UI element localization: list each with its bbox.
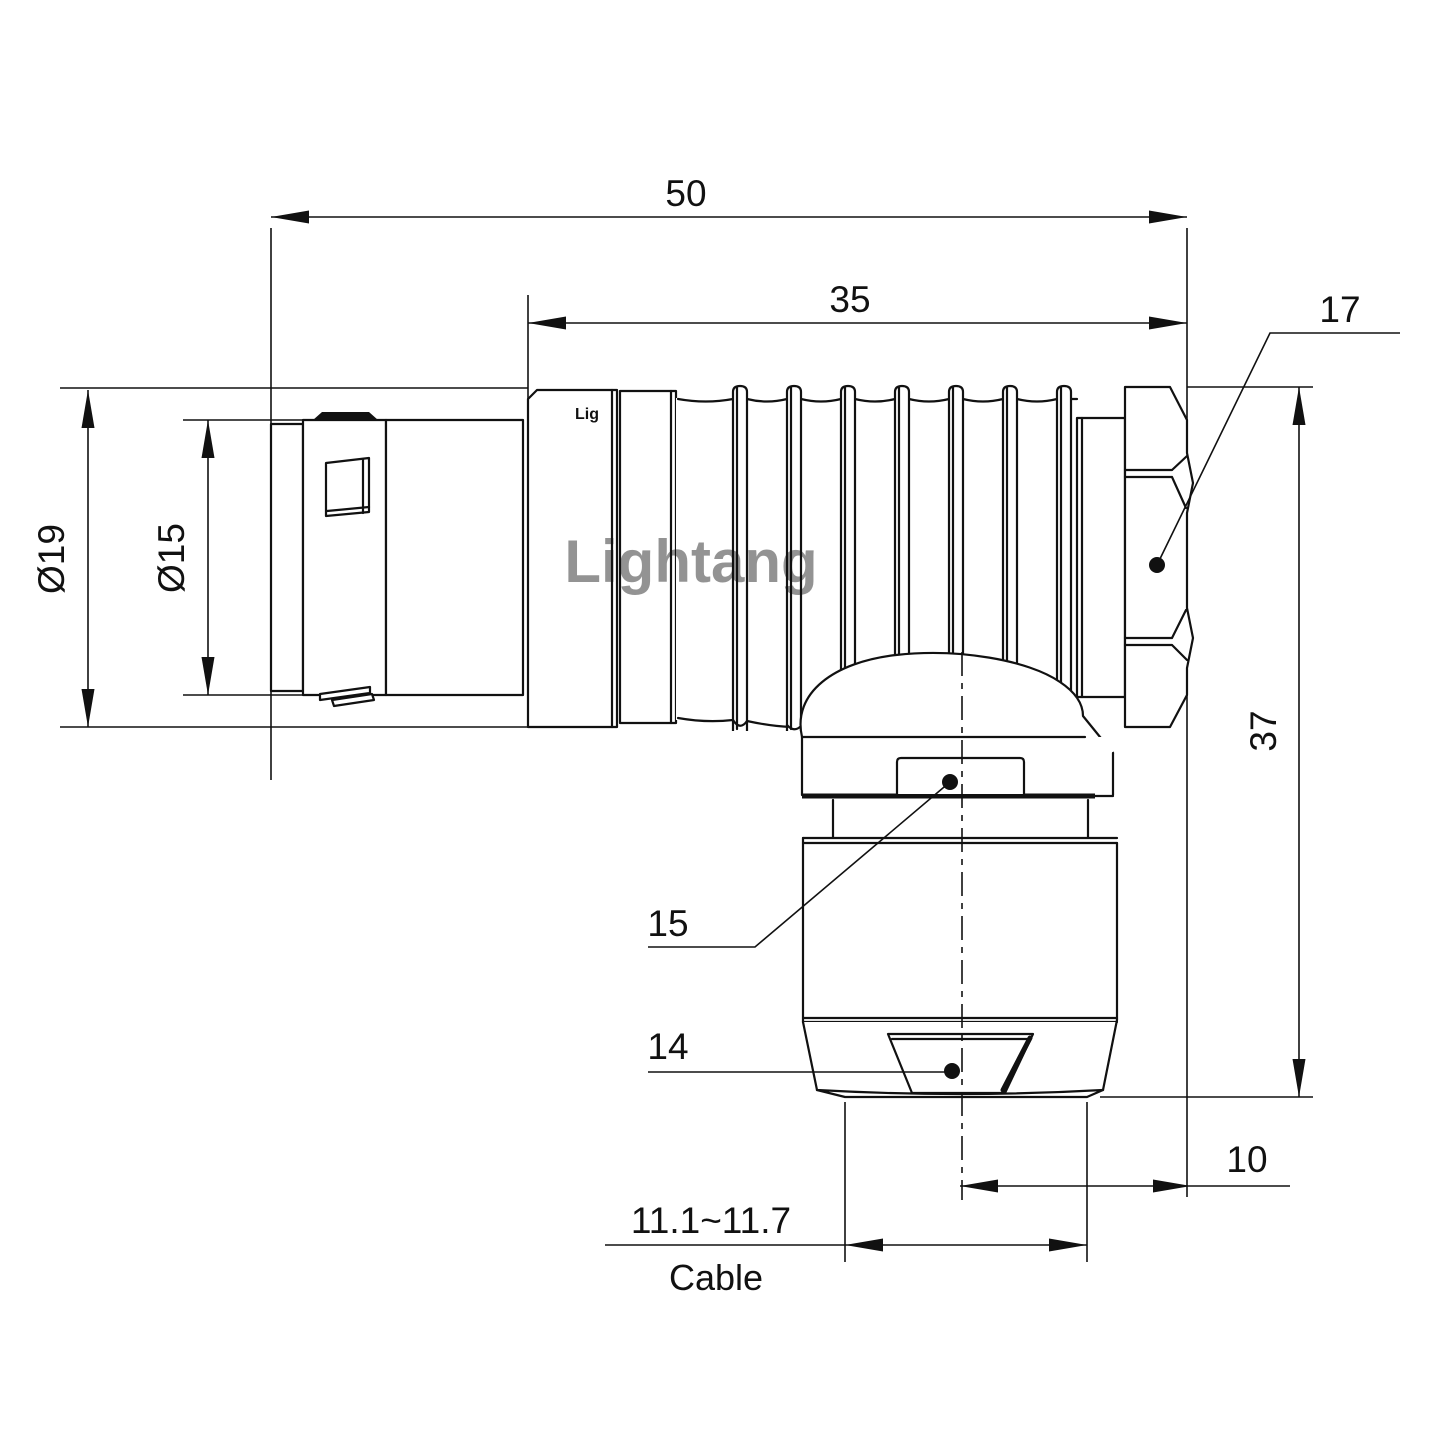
dim-37-arrow-bottom xyxy=(1293,1059,1306,1097)
collet xyxy=(803,1020,1117,1097)
dimension-37: 37 xyxy=(1243,387,1306,1097)
shell-brand-mark: Lig xyxy=(575,406,599,423)
dim-50-text: 50 xyxy=(665,173,706,214)
dimension-dia19: Ø19 xyxy=(31,390,95,727)
leader-14-dot xyxy=(944,1063,960,1079)
dim-35-text: 35 xyxy=(829,279,870,320)
dim-10-arrow-left xyxy=(960,1180,998,1193)
watermark-text: Lightang xyxy=(564,528,817,595)
front-sleeve xyxy=(386,420,523,695)
dim-cable-word-text: Cable xyxy=(669,1257,763,1298)
dim-dia15-arrow-top xyxy=(202,420,215,458)
step-section xyxy=(1077,418,1125,697)
dim-10-arrow-right xyxy=(1153,1180,1191,1193)
leader-17-dot xyxy=(1149,557,1165,573)
dim-dia15-text: Ø15 xyxy=(151,523,192,593)
dim-14-text: 14 xyxy=(647,1026,688,1067)
dim-dia19-text: Ø19 xyxy=(31,524,72,594)
neck xyxy=(833,800,1088,838)
dim-37-arrow-top xyxy=(1293,387,1306,425)
leader-15-dot xyxy=(942,774,958,790)
dimension-dia15: Ø15 xyxy=(151,420,215,695)
dim-35-arrow-left xyxy=(528,317,566,330)
technical-drawing-page: Lig xyxy=(0,0,1440,1440)
hex-nut xyxy=(1125,387,1193,727)
dimension-cable: 11.1~11.7 Cable xyxy=(605,1200,1087,1298)
dim-17-text: 17 xyxy=(1319,289,1360,330)
dim-35-arrow-right xyxy=(1149,317,1187,330)
dim-dia19-arrow-top xyxy=(82,390,95,428)
dim-cable-arrow-right xyxy=(1049,1239,1087,1252)
dimension-10: 10 xyxy=(960,1139,1290,1193)
dim-10-text: 10 xyxy=(1226,1139,1267,1180)
dim-50-arrow-left xyxy=(271,211,309,224)
dim-cable-arrow-left xyxy=(845,1239,883,1252)
leader-17-line xyxy=(1157,333,1400,565)
dimension-35: 35 xyxy=(528,279,1187,330)
dim-cable-range-text: 11.1~11.7 xyxy=(631,1200,791,1241)
dim-dia19-arrow-bottom xyxy=(82,689,95,727)
barrel-key-bump xyxy=(313,412,378,420)
extension-lines xyxy=(60,228,1313,1262)
dim-15-text: 15 xyxy=(647,903,688,944)
dim-dia15-arrow-bottom xyxy=(202,657,215,695)
connector-drawing-svg: Lig xyxy=(0,0,1440,1440)
clamp-band xyxy=(802,737,1113,796)
dimension-50: 50 xyxy=(271,173,1187,224)
connector-body: Lig xyxy=(271,386,1193,1097)
band-flat-15 xyxy=(897,758,1024,794)
neck-fill xyxy=(833,800,1088,838)
front-tip xyxy=(271,424,303,691)
dim-37-text: 37 xyxy=(1243,710,1284,751)
dim-50-arrow-right xyxy=(1149,211,1187,224)
rib-7 xyxy=(1057,386,1071,731)
